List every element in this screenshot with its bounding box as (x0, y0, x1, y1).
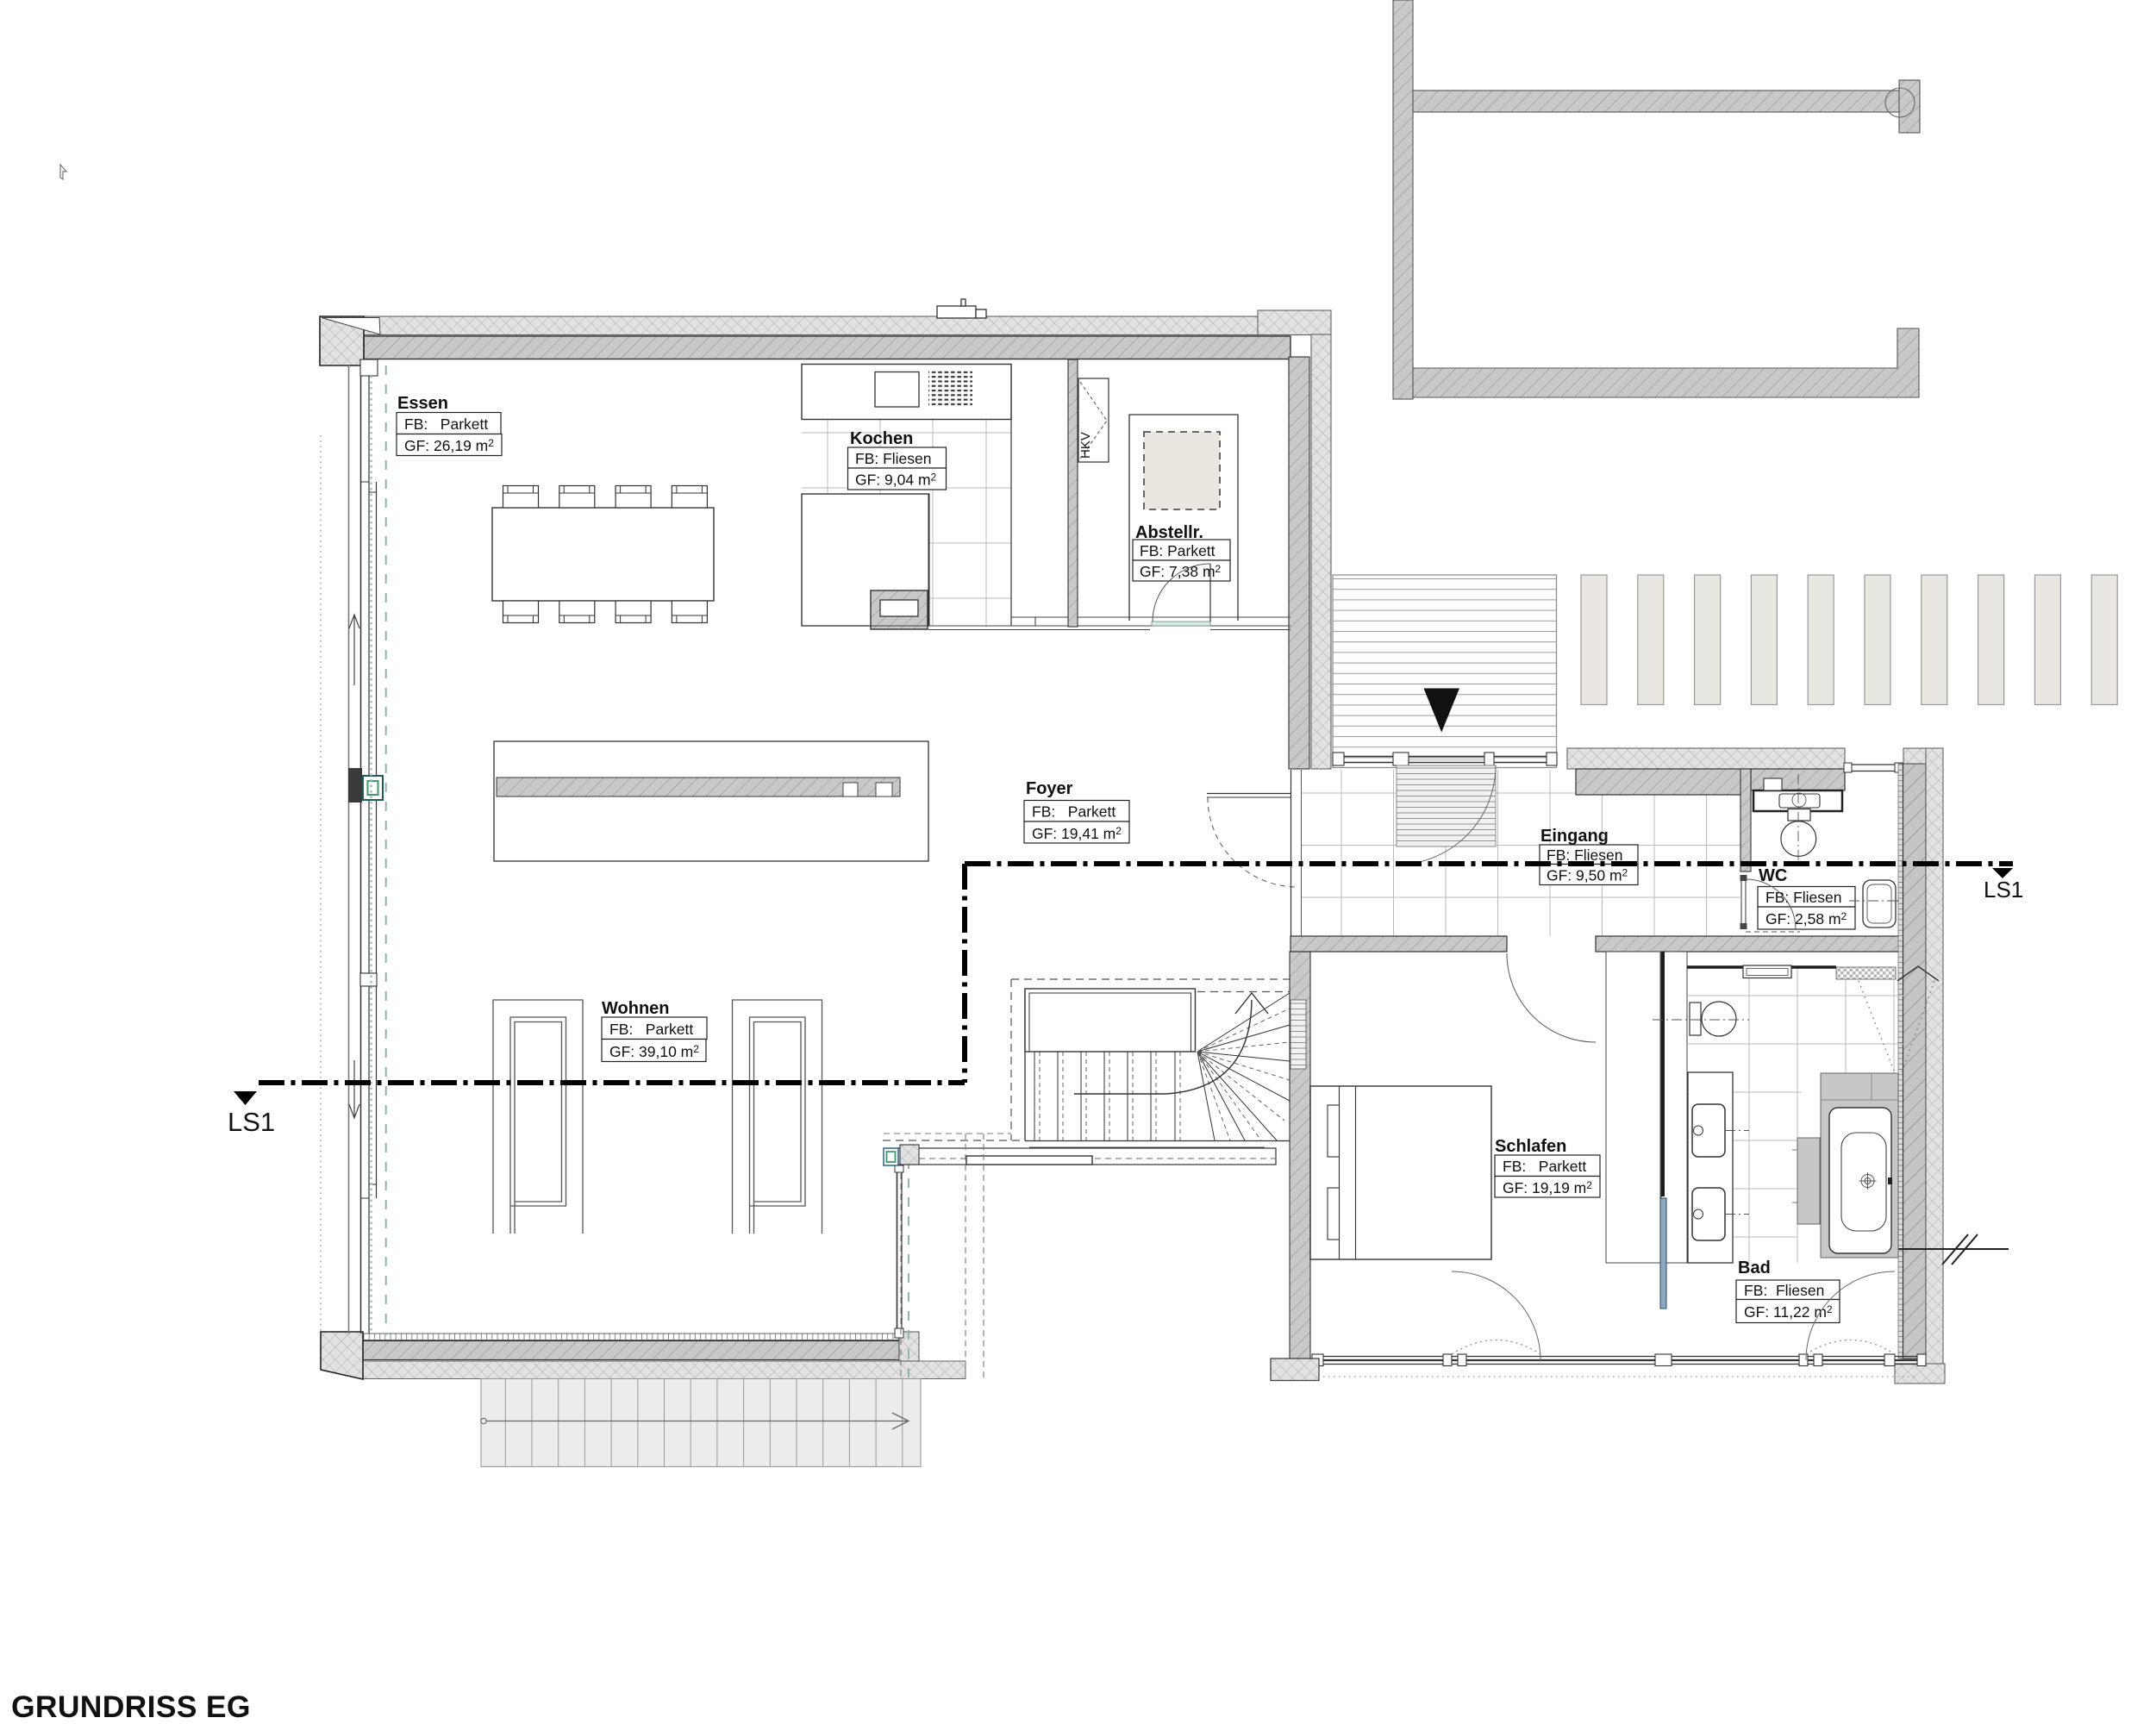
svg-text:LS1: LS1 (1984, 877, 2023, 903)
svg-text:FB: Parkett: FB: Parkett (404, 415, 488, 433)
svg-text:Bad: Bad (1738, 1259, 1771, 1277)
svg-text:GF: 11,22 m2: GF: 11,22 m2 (1744, 1303, 1833, 1321)
svg-text:GF: 26,19 m2: GF: 26,19 m2 (404, 437, 494, 454)
svg-text:Eingang: Eingang (1540, 827, 1609, 846)
svg-text:GF: 9,50 m2: GF: 9,50 m2 (1547, 867, 1628, 884)
svg-text:GF: 9,04 m2: GF: 9,04 m2 (855, 472, 937, 489)
svg-text:FB: Fliesen: FB: Fliesen (855, 450, 932, 467)
svg-text:FB: Parkett: FB: Parkett (1503, 1158, 1586, 1175)
svg-text:FB: Parkett: FB: Parkett (609, 1021, 693, 1038)
svg-text:FB: Parkett: FB: Parkett (1140, 542, 1215, 559)
svg-text:GF: 19,41 m2: GF: 19,41 m2 (1032, 825, 1122, 842)
svg-text:HKV: HKV (1078, 432, 1093, 459)
svg-text:Essen: Essen (397, 394, 448, 413)
svg-text:Schlafen: Schlafen (1495, 1137, 1566, 1156)
svg-text:Wohnen: Wohnen (602, 999, 670, 1018)
svg-text:GRUNDRISS EG: GRUNDRISS EG (11, 1690, 251, 1724)
svg-text:FB: Fliesen: FB: Fliesen (1744, 1282, 1824, 1299)
svg-text:GF: 2,58 m2: GF: 2,58 m2 (1765, 910, 1847, 928)
svg-text:FB: Fliesen: FB: Fliesen (1765, 889, 1842, 906)
svg-text:FB: Parkett: FB: Parkett (1032, 803, 1115, 821)
svg-text:GF: 39,10 m2: GF: 39,10 m2 (609, 1043, 699, 1060)
svg-text:Foyer: Foyer (1026, 779, 1073, 798)
svg-text:Kochen: Kochen (850, 429, 913, 448)
svg-text:LS1: LS1 (228, 1107, 275, 1137)
svg-text:GF: 19,19 m2: GF: 19,19 m2 (1503, 1179, 1592, 1196)
